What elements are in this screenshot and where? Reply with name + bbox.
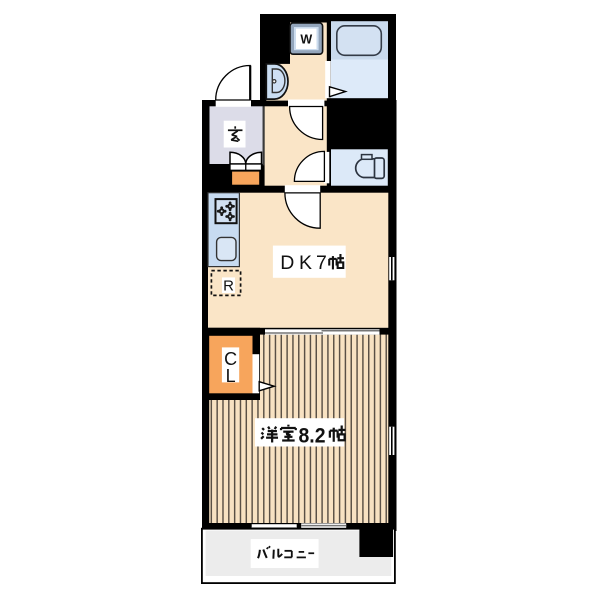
svg-text:7: 7 <box>316 252 327 274</box>
svg-text:8.2: 8.2 <box>299 424 326 447</box>
svg-text:R: R <box>223 277 234 294</box>
svg-text:W: W <box>300 33 312 47</box>
svg-text:L: L <box>226 366 236 386</box>
svg-text:D: D <box>280 252 294 274</box>
svg-text:K: K <box>299 252 312 274</box>
